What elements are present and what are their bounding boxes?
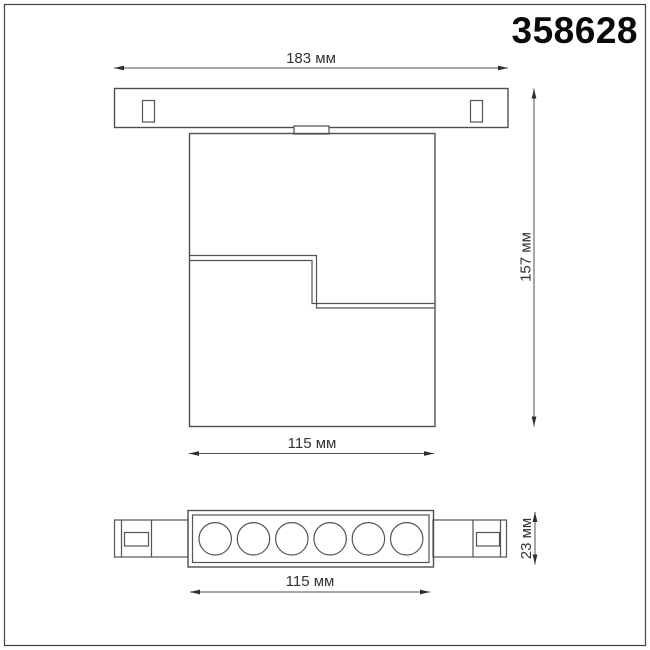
dim-body-width-label: 115 мм [288, 435, 337, 452]
arrow-left-icon [189, 451, 199, 456]
dim-overall-height-label: 157 мм [518, 232, 535, 282]
arrow-left-icon [114, 66, 124, 71]
connector-right-contact [477, 533, 500, 547]
led-lens-circle [391, 523, 423, 555]
dim-bottom-width-label: 115 мм [286, 573, 335, 590]
dim-track-width-label: 183 мм [286, 50, 336, 67]
arrow-down-icon [532, 417, 537, 427]
dim-depth: 23 мм [518, 512, 537, 565]
led-lens-circle [314, 523, 346, 555]
arrow-right-icon [424, 451, 434, 456]
connector-right-outline [433, 520, 507, 557]
arrow-right-icon [420, 590, 430, 595]
arrow-right-icon [498, 66, 508, 71]
led-lens-circle [237, 523, 269, 555]
body-seam-lower [190, 261, 436, 304]
led-lens-circle [199, 523, 231, 555]
mounting-track [115, 89, 509, 128]
led-housing-outer [188, 511, 434, 568]
dim-body-width: 115 мм [189, 435, 434, 456]
connector-left-contact [125, 533, 149, 547]
led-array [199, 523, 423, 555]
track-slot-left [143, 101, 155, 123]
arrow-left-icon [190, 590, 200, 595]
technical-drawing-page: 358628 183 мм [0, 0, 650, 650]
led-lens-circle [276, 523, 308, 555]
dim-depth-label: 23 мм [518, 518, 535, 559]
led-lens-circle [352, 523, 384, 555]
track-slot-right [471, 101, 483, 123]
led-housing-inner [193, 515, 430, 563]
connector-right [433, 520, 507, 557]
connector-left [115, 520, 189, 557]
arrow-up-icon [532, 89, 537, 99]
dim-overall-height: 157 мм [518, 89, 537, 427]
luminaire-dimension-drawing: 358628 183 мм [0, 0, 650, 650]
model-number: 358628 [512, 10, 638, 51]
top-view: 183 мм 115 мм [114, 50, 536, 456]
dim-track-width: 183 мм [114, 50, 508, 70]
bottom-view: 115 мм 23 мм [115, 511, 538, 595]
page-border-frame [5, 5, 646, 646]
dim-bottom-width: 115 мм [190, 573, 430, 594]
